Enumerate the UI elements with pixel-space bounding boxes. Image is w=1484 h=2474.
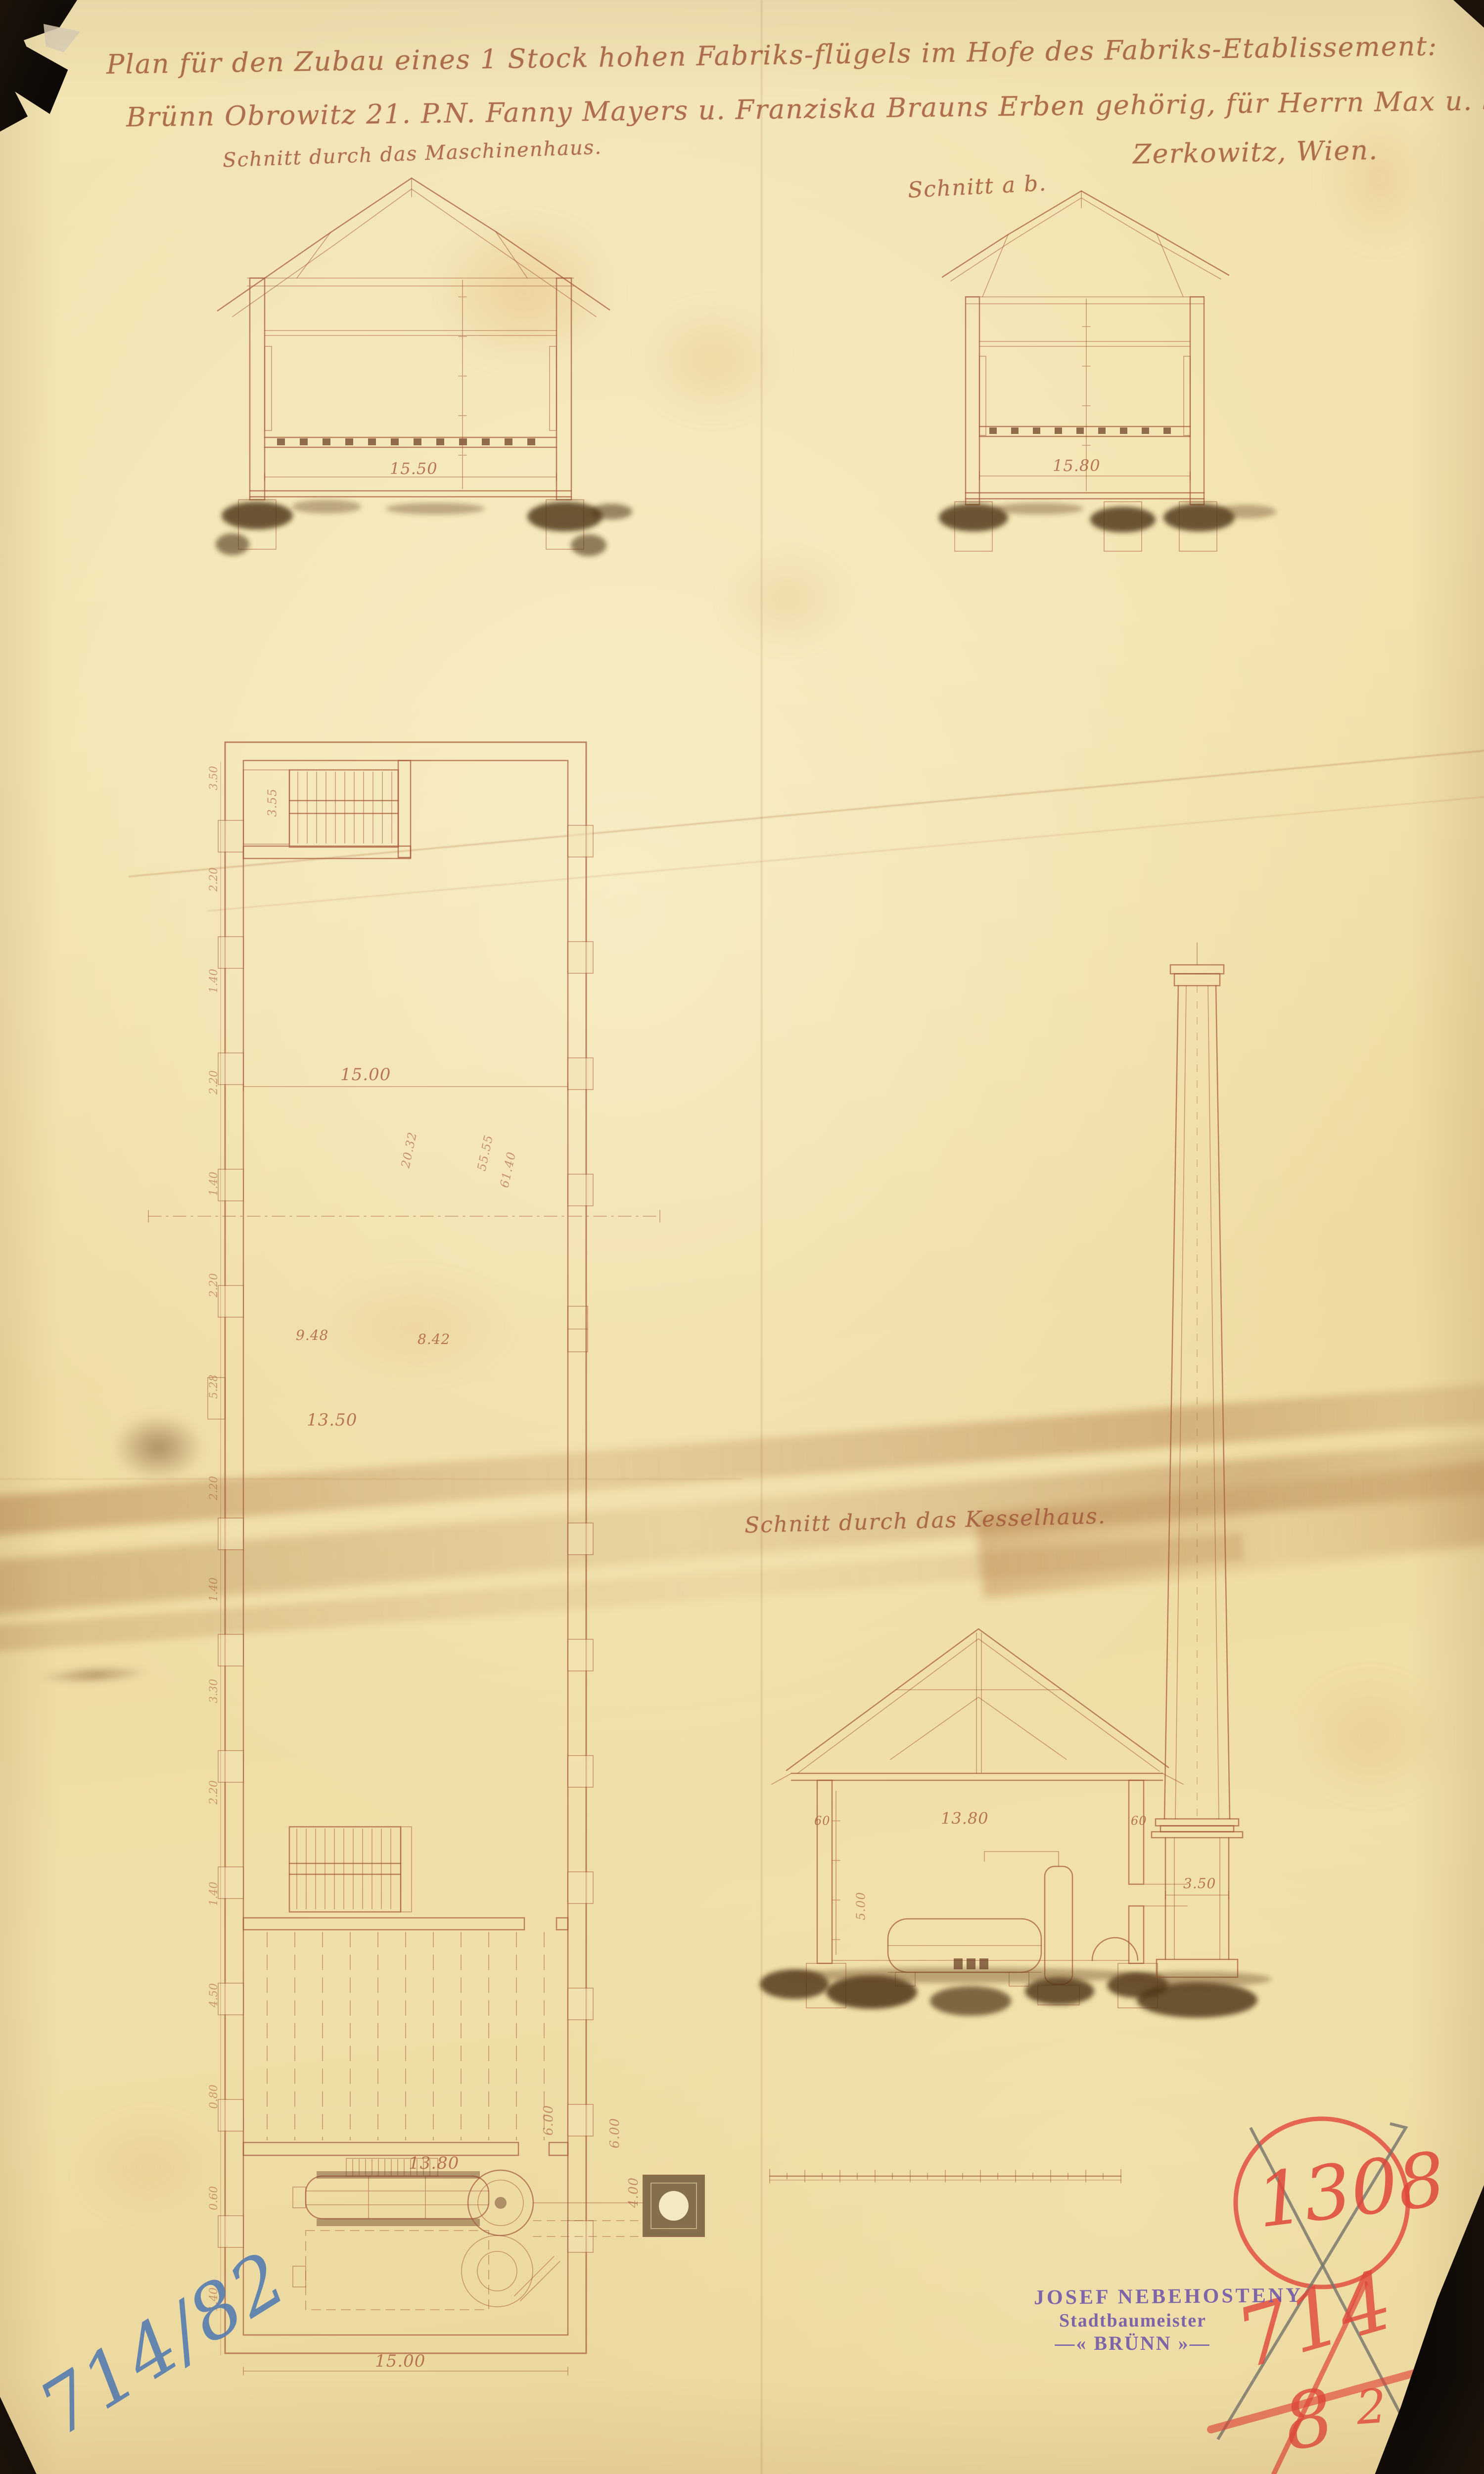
chain-dim: 2.20	[208, 1780, 220, 1805]
dim-ab-width: 15.80	[1053, 456, 1101, 475]
dim-kessel-wall-left: 60	[814, 1814, 831, 1828]
window-niches-right	[568, 825, 593, 2252]
dim-kessel-depth: 5.00	[854, 1892, 868, 1920]
dim-room-a: 9.48	[296, 1327, 328, 1343]
chain-dim: 2.20	[208, 1476, 220, 1500]
floorboards	[267, 1932, 544, 2140]
dim-room-len: 13.50	[307, 1410, 357, 1430]
chain-dim: 5.28	[208, 1375, 220, 1399]
dim-stair-room: 3.55	[266, 788, 279, 816]
scale-bar	[770, 2169, 1121, 2183]
chain-dim: 2.20	[208, 1273, 220, 1297]
drawing-linework	[0, 0, 1484, 2474]
staircase-upper	[289, 770, 398, 847]
section-ab-drawing	[939, 191, 1276, 551]
architect-stamp-name: JOSEF NEBEHOSTENY	[1034, 2284, 1232, 2309]
window-niches-left	[218, 820, 243, 2247]
dim-chimney-base: 3.50	[1183, 1875, 1216, 1892]
chain-dim: 0.80	[208, 2085, 220, 2109]
chain-dim: 1.40	[208, 1172, 220, 1196]
chimney-elevation-drawing	[1123, 943, 1271, 2018]
chain-dim: 2.20	[208, 867, 220, 892]
dim-kessel-wall-right: 60	[1131, 1814, 1147, 1828]
joist-ends	[277, 438, 535, 445]
chain-dim: 3.30	[208, 1679, 220, 1703]
joist-ends	[989, 428, 1171, 434]
dim-plan-hall-width: 15.00	[340, 1065, 391, 1085]
dim-right-outer: 6.00	[607, 2118, 622, 2148]
dim-flue: 4.00	[626, 2177, 641, 2208]
plan-title-line3: Zerkowitz, Wien.	[1132, 135, 1378, 170]
dim-kessel-interior: 13.80	[941, 1809, 989, 1828]
dim-plan-bottom: 15.00	[375, 2351, 425, 2371]
dim-room-b: 8.42	[417, 1331, 450, 1347]
chimney-plan	[643, 2175, 704, 2236]
architect-stamp-city: —« BRÜNN »—	[1034, 2331, 1232, 2355]
staircase-lower	[289, 1827, 412, 1912]
scanned-plan-page: Plan für den Zubau eines 1 Stock hohen F…	[0, 0, 1484, 2474]
dim-boiler-room: 13.80	[409, 2153, 459, 2173]
file-number-suffix: 2	[1354, 2379, 1388, 2435]
dim-right-inner: 6.00	[541, 2105, 556, 2136]
chain-dim: 3.50	[208, 766, 220, 790]
chain-dim: 2.20	[208, 1070, 220, 1094]
chain-dim: 0.60	[208, 2186, 220, 2210]
chain-dim: 1.40	[208, 1882, 220, 1906]
section-maschinenhaus-drawing	[216, 178, 632, 556]
architect-stamp-title: Stadtbaumeister	[1034, 2310, 1232, 2331]
chain-dim: 1.40	[208, 1577, 220, 1602]
chain-dim: 4.50	[208, 1983, 220, 2007]
dim-maschinenhaus-width: 15.50	[390, 459, 438, 478]
chain-dim: 1.40	[208, 969, 220, 993]
